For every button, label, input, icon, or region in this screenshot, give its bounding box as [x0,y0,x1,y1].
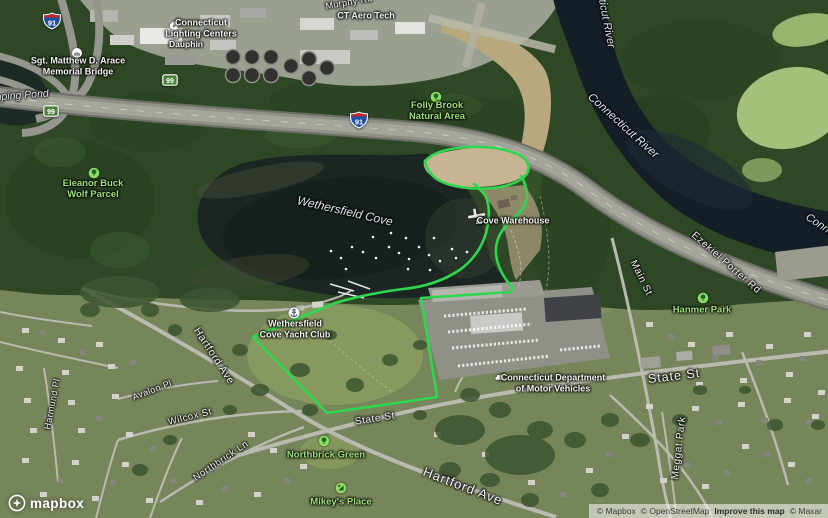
poi-line: Cove Yacht Club [260,329,331,340]
park-tree-icon [697,292,709,304]
poi-label-ct-aero-tech: CT Aero Tech [337,11,395,22]
park-label-eleanor-buck-wolf-parcel: Eleanor Buck Wolf Parcel [63,178,124,200]
attribution-improve-link[interactable]: Improve this map [714,506,784,516]
interstate-91-shield: 91 [42,13,62,30]
park-line: Folly Brook [409,100,465,111]
mapbox-wordmark: mapbox [30,496,84,511]
poi-label-arace-memorial-bridge: Sgt. Matthew D. Arace Memorial Bridge [31,55,125,76]
park-label-mikeys-place: Mikey's Place [310,496,371,507]
park-tree-icon [318,435,330,447]
park-label-hanmer-park: Hanmer Park [673,304,732,315]
park-line: Eleanor Buck [63,178,124,189]
poi-line: Wethersfield [260,318,331,329]
poi-label-dmv: Connecticut Department of Motor Vehicles [501,372,606,393]
park-label-folly-brook-natural-area: Folly Brook Natural Area [409,100,465,122]
attribution-mapbox-link[interactable]: © Mapbox [597,506,636,516]
mapbox-logo-icon [8,494,26,512]
svg-text:91: 91 [355,117,363,126]
satellite-map-canvas[interactable]: Murphy Rd Connecticut Lighting Centers D… [0,0,828,518]
interstate-91-shield: 91 [349,112,369,129]
playground-icon [335,482,347,494]
park-line: Natural Area [409,111,465,122]
poi-line: Connecticut [165,17,237,28]
poi-line: of Motor Vehicles [501,383,606,394]
poi-label-wethersfield-cove-yacht-club: Wethersfield Cove Yacht Club [260,318,331,339]
poi-line: Connecticut Department [501,372,606,383]
route-99-shield: 99 [162,74,178,86]
route-99-shield: 99 [43,105,59,117]
poi-line: Memorial Bridge [31,66,125,77]
attribution-maxar-link[interactable]: © Maxar [790,506,822,516]
poi-label-connecticut-lighting-centers: Connecticut Lighting Centers [165,17,237,38]
svg-text:99: 99 [47,109,55,116]
poi-label-cove-warehouse: Cove Warehouse [477,216,550,227]
park-line: Wolf Parcel [63,189,124,200]
satellite-imagery [0,0,828,518]
svg-text:99: 99 [166,78,174,85]
attribution-bar: © Mapbox © OpenStreetMap Improve this ma… [589,504,828,518]
svg-text:91: 91 [48,18,56,27]
anchor-icon [288,307,300,319]
park-label-northbrick-green: Northbrick Green [287,449,365,460]
mapbox-logo[interactable]: mapbox [8,494,84,512]
poi-line: Sgt. Matthew D. Arace [31,55,125,66]
attribution-osm-link[interactable]: © OpenStreetMap [641,506,710,516]
poi-label-dauphin: Dauphin [169,39,203,49]
poi-line: Lighting Centers [165,28,237,39]
